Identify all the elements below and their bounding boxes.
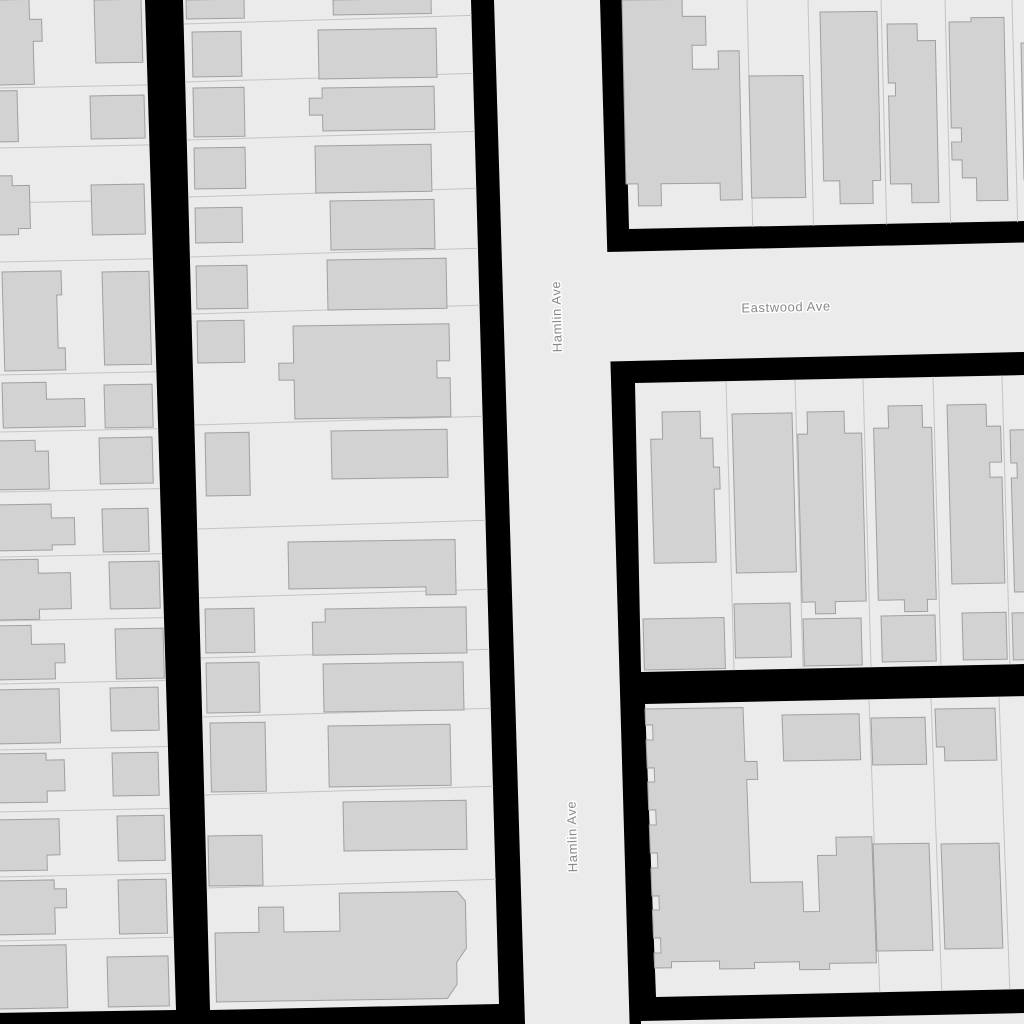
- svg-text:Hamlin Ave: Hamlin Ave: [548, 281, 565, 353]
- svg-text:Eastwood Ave: Eastwood Ave: [741, 298, 831, 315]
- svg-text:Hamlin Ave: Hamlin Ave: [564, 801, 581, 873]
